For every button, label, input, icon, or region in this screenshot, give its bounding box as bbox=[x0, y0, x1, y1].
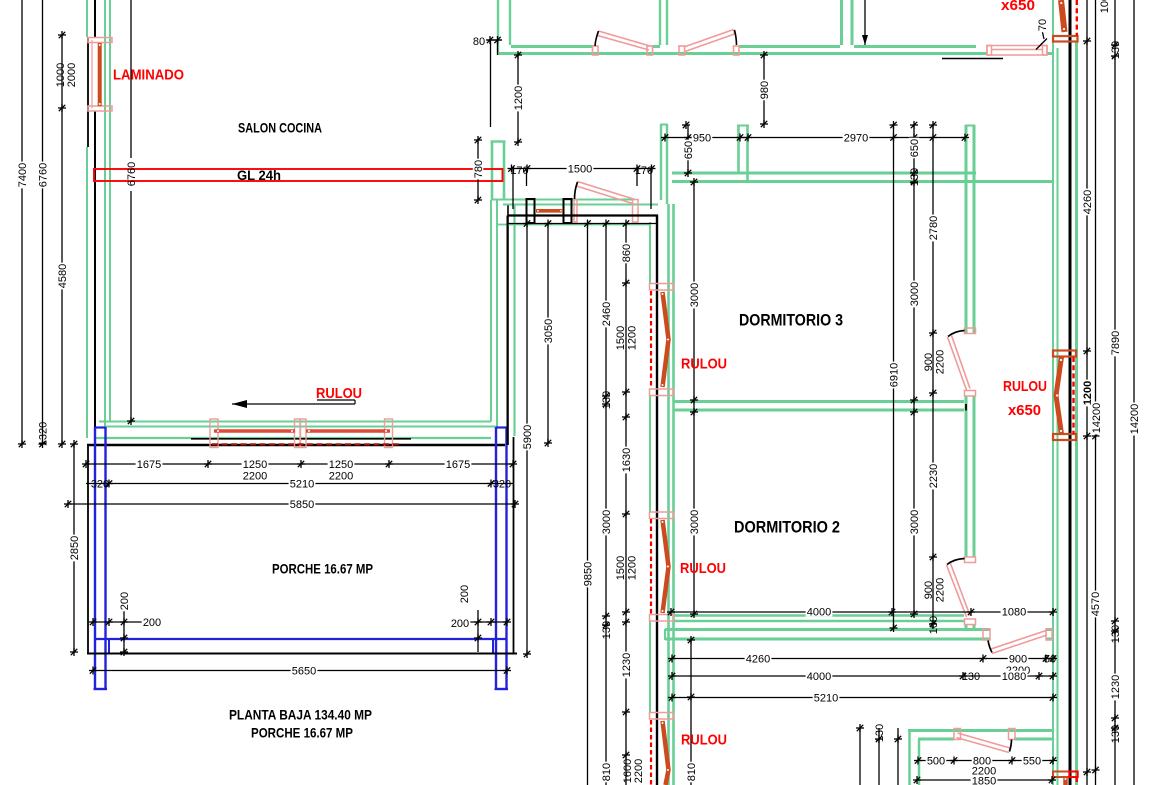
svg-text:1500: 1500 bbox=[615, 326, 627, 350]
svg-text:5900: 5900 bbox=[522, 425, 534, 449]
svg-text:5210: 5210 bbox=[814, 692, 838, 704]
svg-text:1500: 1500 bbox=[615, 556, 627, 580]
svg-text:100: 100 bbox=[928, 616, 940, 634]
svg-text:200: 200 bbox=[143, 617, 161, 629]
svg-text:130: 130 bbox=[1110, 625, 1122, 643]
svg-text:4000: 4000 bbox=[807, 671, 831, 683]
svg-text:200: 200 bbox=[119, 592, 131, 610]
svg-text:1500: 1500 bbox=[568, 163, 592, 175]
svg-text:1250: 1250 bbox=[329, 459, 353, 471]
svg-text:170: 170 bbox=[635, 165, 653, 177]
svg-text:4260: 4260 bbox=[746, 653, 770, 665]
svg-text:PLANTA BAJA 134.40 MP: PLANTA BAJA 134.40 MP bbox=[229, 707, 372, 723]
svg-text:2200: 2200 bbox=[243, 470, 267, 482]
svg-text:1200: 1200 bbox=[626, 326, 638, 350]
svg-text:650: 650 bbox=[683, 141, 695, 159]
svg-text:6910: 6910 bbox=[888, 363, 900, 387]
svg-text:2850: 2850 bbox=[69, 536, 81, 560]
svg-text:3000: 3000 bbox=[909, 282, 921, 306]
svg-text:170: 170 bbox=[510, 165, 528, 177]
svg-text:x650: x650 bbox=[1008, 402, 1041, 419]
svg-text:500: 500 bbox=[927, 755, 945, 767]
svg-text:130: 130 bbox=[1110, 725, 1122, 743]
svg-text:1080: 1080 bbox=[1002, 606, 1026, 618]
svg-text:320: 320 bbox=[493, 478, 511, 490]
svg-text:550: 550 bbox=[1023, 755, 1041, 767]
svg-text:130: 130 bbox=[874, 724, 886, 742]
svg-text:2200: 2200 bbox=[633, 759, 645, 783]
svg-text:3050: 3050 bbox=[543, 319, 555, 343]
svg-text:1320: 1320 bbox=[37, 422, 49, 446]
svg-text:LAMINADO: LAMINADO bbox=[113, 67, 184, 84]
svg-text:3000: 3000 bbox=[689, 283, 701, 307]
svg-text:3000: 3000 bbox=[601, 510, 613, 534]
svg-text:2460: 2460 bbox=[601, 302, 613, 326]
svg-text:130: 130 bbox=[601, 621, 613, 639]
svg-text:650: 650 bbox=[909, 139, 921, 157]
svg-text:2200: 2200 bbox=[934, 350, 946, 374]
svg-text:2230: 2230 bbox=[928, 464, 940, 488]
svg-text:1675: 1675 bbox=[137, 459, 161, 471]
svg-text:900: 900 bbox=[923, 581, 935, 599]
svg-text:5850: 5850 bbox=[290, 499, 314, 511]
svg-text:1675: 1675 bbox=[446, 459, 470, 471]
svg-text:2200: 2200 bbox=[934, 578, 946, 602]
svg-text:2200: 2200 bbox=[329, 470, 353, 482]
svg-text:810: 810 bbox=[601, 763, 613, 781]
svg-text:80: 80 bbox=[473, 36, 485, 48]
svg-text:1200: 1200 bbox=[626, 556, 638, 580]
svg-text:950: 950 bbox=[693, 132, 711, 144]
svg-text:130: 130 bbox=[1110, 41, 1122, 59]
svg-text:x650: x650 bbox=[1001, 0, 1035, 14]
svg-text:1850: 1850 bbox=[972, 775, 996, 785]
svg-text:3000: 3000 bbox=[689, 510, 701, 534]
svg-text:SALON COCINA: SALON COCINA bbox=[238, 120, 322, 136]
svg-text:5650: 5650 bbox=[292, 665, 316, 677]
svg-text:130: 130 bbox=[962, 671, 980, 683]
svg-text:860: 860 bbox=[621, 244, 633, 262]
svg-text:4570: 4570 bbox=[1090, 592, 1102, 616]
svg-text:6760: 6760 bbox=[37, 163, 49, 187]
svg-text:4000: 4000 bbox=[807, 606, 831, 618]
svg-text:2970: 2970 bbox=[844, 132, 868, 144]
svg-text:3000: 3000 bbox=[909, 510, 921, 534]
svg-text:9850: 9850 bbox=[582, 562, 594, 586]
svg-text:6760: 6760 bbox=[126, 162, 138, 186]
svg-text:14200: 14200 bbox=[1129, 404, 1141, 435]
svg-text:130: 130 bbox=[601, 391, 613, 409]
svg-text:200: 200 bbox=[459, 585, 471, 603]
svg-text:5210: 5210 bbox=[290, 478, 314, 490]
svg-text:2000: 2000 bbox=[66, 63, 78, 87]
svg-text:100: 100 bbox=[1099, 0, 1111, 13]
svg-text:GL 24h: GL 24h bbox=[237, 167, 281, 183]
svg-text:900: 900 bbox=[1009, 653, 1027, 665]
svg-text:1080: 1080 bbox=[1002, 671, 1026, 683]
svg-text:7890: 7890 bbox=[1110, 331, 1122, 355]
svg-text:DORMITORIO 2: DORMITORIO 2 bbox=[734, 518, 840, 537]
svg-text:PORCHE 16.67 MP: PORCHE 16.67 MP bbox=[272, 561, 373, 577]
svg-text:14200: 14200 bbox=[1091, 403, 1103, 434]
svg-text:2780: 2780 bbox=[928, 216, 940, 240]
svg-text:980: 980 bbox=[759, 81, 771, 99]
svg-text:1630: 1630 bbox=[621, 448, 633, 472]
svg-text:1250: 1250 bbox=[243, 459, 267, 471]
svg-text:PORCHE 16.67 MP: PORCHE 16.67 MP bbox=[251, 725, 353, 741]
svg-text:RULOU: RULOU bbox=[316, 385, 362, 402]
svg-text:7400: 7400 bbox=[17, 163, 29, 187]
svg-text:130: 130 bbox=[909, 168, 921, 186]
svg-text:RULOU: RULOU bbox=[680, 560, 726, 577]
svg-text:RULOU: RULOU bbox=[681, 356, 727, 373]
svg-text:RULOU: RULOU bbox=[1003, 378, 1047, 395]
svg-text:RULOU: RULOU bbox=[681, 732, 727, 749]
svg-text:4580: 4580 bbox=[57, 264, 69, 288]
svg-text:70: 70 bbox=[1037, 19, 1049, 31]
svg-text:900: 900 bbox=[923, 353, 935, 371]
svg-text:1230: 1230 bbox=[1110, 675, 1122, 699]
svg-text:200: 200 bbox=[451, 618, 469, 630]
svg-text:DORMITORIO 3: DORMITORIO 3 bbox=[739, 311, 843, 330]
svg-text:810: 810 bbox=[686, 763, 698, 781]
svg-text:1230: 1230 bbox=[621, 653, 633, 677]
svg-text:320: 320 bbox=[91, 478, 109, 490]
svg-text:50: 50 bbox=[1044, 653, 1056, 665]
svg-text:780: 780 bbox=[473, 160, 485, 178]
svg-text:4260: 4260 bbox=[1082, 190, 1094, 214]
svg-text:1200: 1200 bbox=[513, 86, 525, 110]
